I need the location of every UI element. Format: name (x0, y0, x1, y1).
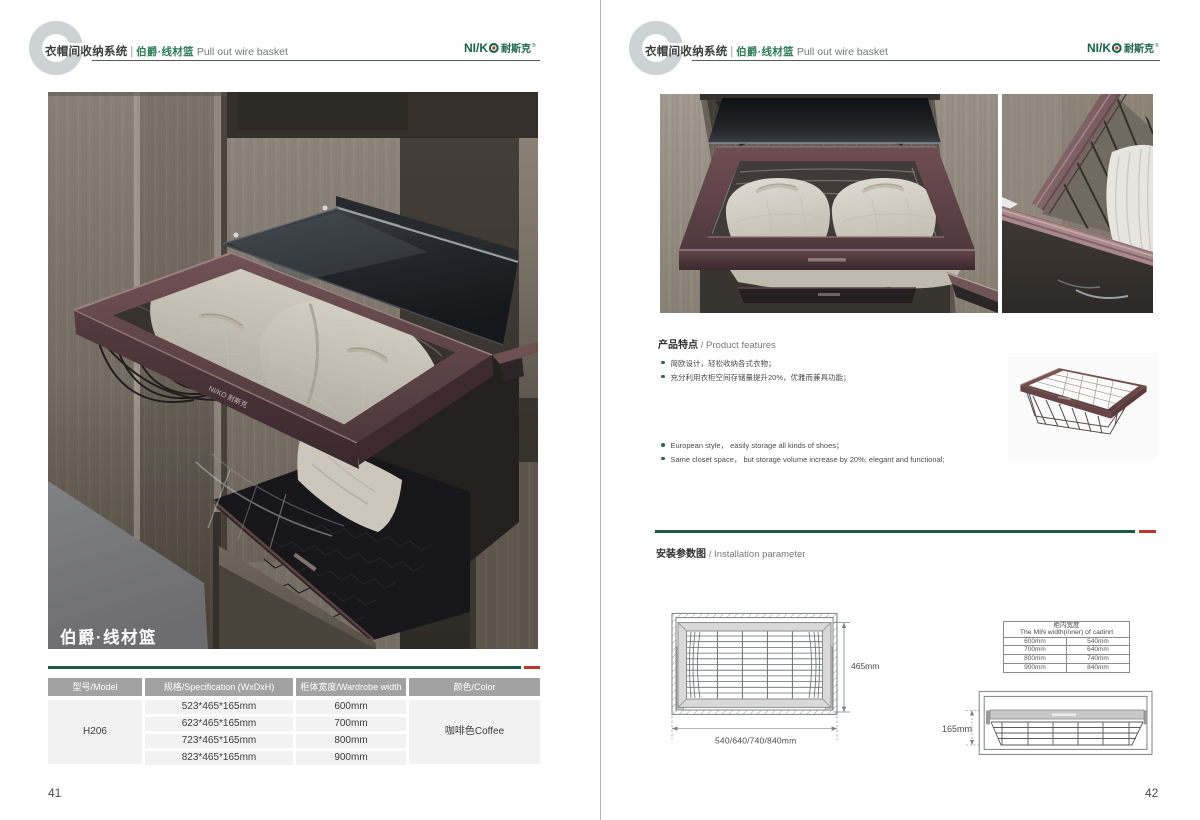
svg-text:®: ® (1155, 42, 1159, 49)
svg-text:耐斯克: 耐斯克 (1124, 42, 1154, 55)
svg-text:465mm: 465mm (851, 661, 879, 671)
svg-text:NI/K: NI/K (464, 41, 488, 55)
svg-text:伯爵·线材篮: 伯爵·线材篮 (60, 627, 157, 647)
svg-text:NI/K: NI/K (1087, 41, 1111, 55)
svg-text:540/640/740/840mm: 540/640/740/840mm (715, 736, 796, 746)
svg-text:®: ® (532, 42, 536, 49)
svg-text:165mm: 165mm (942, 724, 972, 734)
svg-text:耐斯克: 耐斯克 (501, 42, 531, 55)
